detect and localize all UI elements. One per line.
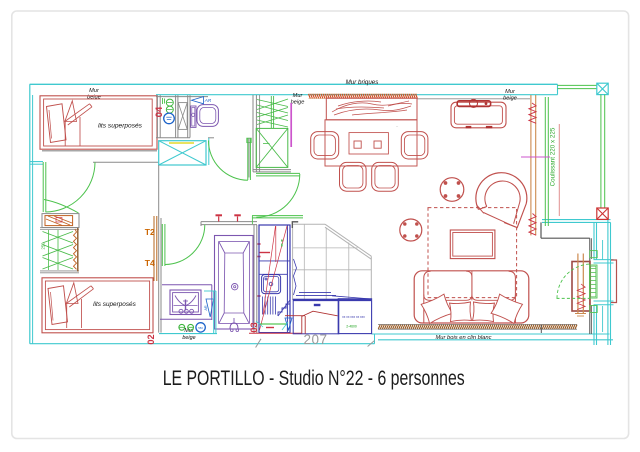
svg-text:550: 550 — [198, 326, 203, 330]
svg-text:02: 02 — [146, 334, 156, 344]
svg-text:T4: T4 — [145, 258, 155, 268]
svg-text:xx xx xxx xx xxx: xx xx xxx xx xxx — [342, 315, 365, 319]
svg-text:lits superposés: lits superposés — [98, 122, 143, 129]
svg-text:Mur: Mur — [505, 89, 516, 95]
svg-text:lits superposés: lits superposés — [93, 301, 136, 308]
svg-text:AR: AR — [204, 98, 212, 103]
svg-text:2-4600: 2-4600 — [346, 324, 357, 328]
svg-text:04: 04 — [154, 106, 165, 117]
svg-text:03: 03 — [249, 322, 259, 332]
svg-text:Mur: Mur — [184, 328, 193, 334]
svg-text:beige: beige — [291, 99, 305, 105]
svg-text:Mur bois en clin blanc: Mur bois en clin blanc — [435, 335, 491, 341]
svg-text:207: 207 — [303, 332, 327, 347]
svg-text:Mur: Mur — [293, 93, 304, 99]
svg-text:250: 250 — [41, 242, 46, 250]
svg-text:Mur: Mur — [89, 88, 100, 94]
svg-text:AR: AR — [204, 305, 208, 311]
svg-text:beige: beige — [182, 335, 195, 341]
svg-text:beige: beige — [503, 96, 517, 102]
svg-text:Mur briques: Mur briques — [346, 79, 379, 86]
svg-text:T2: T2 — [145, 227, 155, 237]
svg-text:LE PORTILLO - Studio N°22 - 6: LE PORTILLO - Studio N°22 - 6 personnes — [163, 367, 465, 390]
svg-text:Coulissant 220 x 225: Coulissant 220 x 225 — [550, 127, 557, 186]
